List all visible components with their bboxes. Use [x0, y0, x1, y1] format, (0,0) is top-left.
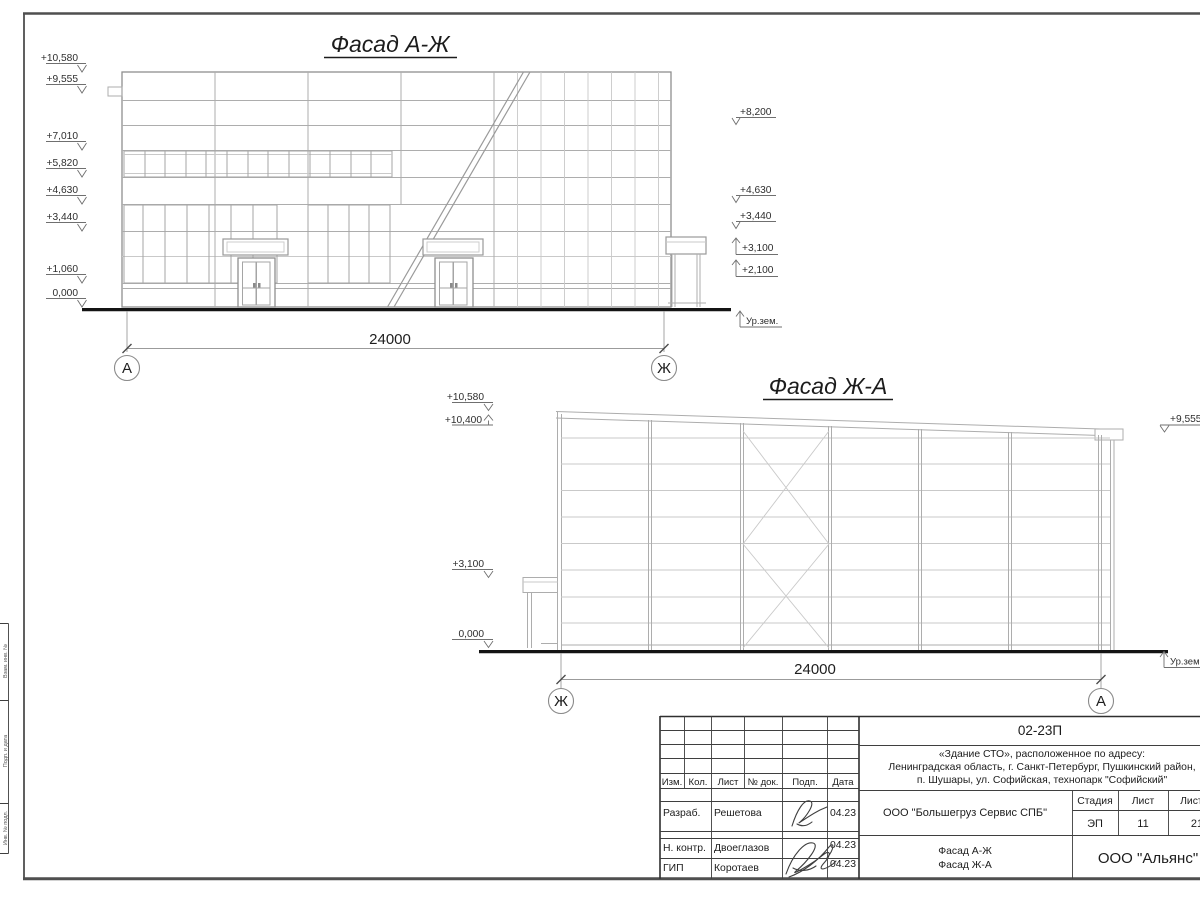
client-name: ООО "Большегруз Сервис СПБ" [883, 807, 1047, 819]
facade2-dimension-value: 24000 [794, 661, 836, 678]
rev-header-cell: Изм. [662, 777, 683, 788]
elevation-mark: +2,100 [732, 260, 778, 277]
elevation-mark: 0,000 [46, 288, 87, 307]
elevation-mark: +5,820 [46, 158, 87, 177]
facade2-title: Фасад Ж-А [769, 373, 888, 399]
sig-role: Н. контр. [663, 843, 706, 854]
elevation-mark: 0,000 [452, 629, 493, 648]
elevation-value: +3,440 [47, 212, 79, 223]
titleblock-column-lines [712, 716, 828, 879]
drawing-sheet: Взам. инв. № Подп. и дата Инв. № подл. Ф… [0, 0, 1200, 900]
margin-label: Взам. инв. № [3, 644, 9, 678]
facade2-elevation-marks-right: +9,555 Ур.зем. [1160, 414, 1200, 668]
elevation-value: +3,100 [453, 559, 485, 570]
sig-role: ГИП [663, 863, 684, 874]
elevation-mark: +3,440 [46, 212, 87, 231]
elevation-mark: +8,200 [732, 107, 776, 125]
facade1-elevation-marks-left: +10,580 +9,555 +7,010 +5,820 +4,630 +3,4… [41, 53, 87, 307]
elevation-mark: +1,060 [46, 264, 87, 283]
elevation-mark: +9,555 [46, 74, 87, 93]
sig-date: 04.23 [830, 808, 856, 819]
elevation-value: +10,580 [447, 392, 484, 403]
elevation-value: 0,000 [459, 629, 485, 640]
elevation-mark: +4,630 [46, 185, 87, 204]
facade2-right-wall [1111, 431, 1115, 650]
rev-header-cell: № док. [748, 777, 779, 788]
sheets-total: 21 [1191, 818, 1200, 830]
facade2-elevation-marks-left: +10,580 +10,400 +3,100 0,000 [445, 392, 493, 648]
elevation-mark: +3,100 [732, 238, 778, 255]
facade1-outline [122, 72, 671, 307]
facade1-elevation-marks-right: +8,200 +4,630 +3,440 +3,100 +2,100 Ур.зе… [732, 107, 782, 327]
elevation-value: +4,630 [47, 185, 79, 196]
rev-header-cell: Дата [832, 777, 854, 788]
facade1-dimension: 24000 А Ж [115, 311, 677, 381]
project-address-line: Ленинградская область, г. Санкт-Петербур… [888, 761, 1195, 773]
facade1-entrance-2 [423, 239, 483, 307]
sheet-number: 11 [1137, 818, 1148, 830]
ground-level-mark: Ур.зем. [1160, 652, 1200, 668]
elevation-value: +10,400 [445, 415, 482, 426]
facade1-window-band [124, 151, 392, 177]
sig-name: Двоеглазов [714, 843, 770, 854]
elevation-mark: +10,400 [445, 415, 493, 426]
margin-stamp: Взам. инв. № Подп. и дата Инв. № подл. [0, 624, 9, 854]
signature-scribble [792, 801, 827, 826]
facade1-grid-mid-mullions [328, 205, 369, 283]
axis-letter: Ж [554, 693, 568, 710]
elevation-value: +9,555 [1170, 414, 1200, 425]
facade1-floor-lines [122, 101, 671, 289]
facade2-porch-canopy [523, 578, 558, 593]
facade2-left-wall [558, 412, 562, 650]
elevation-value: +8,200 [740, 107, 772, 118]
elevation-mark: +4,630 [732, 185, 776, 203]
project-address-line: «Здание СТО», расположенное по адресу: [939, 749, 1145, 760]
ground-level-label: Ур.зем. [1170, 657, 1200, 668]
facade2-dimension: 24000 Ж А [549, 653, 1114, 714]
sig-date: 04.23 [830, 840, 856, 851]
rev-header-cell: Подп. [792, 777, 817, 788]
facade1-entrance-1 [223, 239, 288, 307]
ground-level-mark: Ур.зем. [736, 311, 782, 327]
stage-header: Стадия [1077, 796, 1112, 807]
rev-header-cell: Лист [718, 777, 739, 788]
facade1-curtainwall-mullions [518, 72, 659, 307]
margin-label: Подп. и дата [3, 734, 9, 767]
facade1-title: Фасад А-Ж [331, 31, 451, 57]
facade2-girts [561, 438, 1110, 623]
facade1-door-1-handle [258, 283, 261, 288]
elevation-value: +10,580 [41, 53, 78, 64]
facade1-band-inner [124, 155, 392, 174]
facade1-door-2-handle [450, 283, 453, 288]
margin-label: Инв. № подл. [3, 810, 9, 845]
elevation-mark: +10,580 [41, 53, 87, 72]
facade1-canopy-1 [223, 239, 288, 255]
sig-role: Разраб. [663, 807, 700, 819]
facade1-door-2-handle [455, 283, 458, 288]
sig-name: Решетова [714, 808, 762, 819]
elevation-value: +4,630 [740, 185, 772, 196]
facade1-porch-canopy [666, 237, 706, 254]
sheet-header: Лист [1132, 796, 1155, 807]
facade2-columns [649, 420, 1102, 650]
drawing-title-line: Фасад А-Ж [938, 846, 992, 857]
elevation-value: +3,440 [740, 211, 772, 222]
facade1-porch-posts [668, 254, 706, 307]
elevation-value: +3,100 [742, 243, 774, 254]
facade1-left-ledge [108, 87, 122, 96]
elevation-mark: +3,440 [732, 211, 776, 229]
facade-a-zh: Фасад А-Ж [41, 31, 782, 381]
sheets-total-header: Листов [1180, 796, 1200, 807]
doc-code: 02-23П [1018, 723, 1062, 738]
elevation-value: +5,820 [47, 158, 79, 169]
facade-zh-a: Фасад Ж-А +10,580 [445, 373, 1200, 714]
elevation-value: +9,555 [47, 74, 79, 85]
facade1-door-1-handle [253, 283, 256, 288]
elevation-value: 0,000 [53, 288, 79, 299]
project-address-line: п. Шушары, ул. Софийская, технопарк "Соф… [917, 774, 1168, 786]
elevation-mark: +7,010 [46, 131, 87, 150]
drawing-title-line: Фасад Ж-А [938, 860, 992, 871]
ground-level-label: Ур.зем. [746, 316, 778, 327]
facade1-canopy-2 [423, 239, 483, 255]
elevation-value: +2,100 [742, 265, 774, 276]
elevation-mark: +10,580 [447, 392, 493, 411]
sig-date: 04.23 [830, 859, 856, 870]
title-block: 02-23П «Здание СТО», расположенное по ад… [660, 716, 1200, 879]
drawing-canvas: Взам. инв. № Подп. и дата Инв. № подл. Ф… [0, 0, 1200, 900]
axis-letter: А [1096, 693, 1106, 710]
axis-letter: А [122, 360, 132, 377]
axis-letter: Ж [657, 360, 671, 377]
signature-scribble [786, 843, 836, 877]
elevation-value: +1,060 [47, 264, 79, 275]
facade2-roof-lines [556, 412, 1116, 437]
elevation-mark: +9,555 [1160, 414, 1200, 432]
facade2-porch-post [528, 593, 558, 649]
stage-value: ЭП [1087, 818, 1103, 830]
facade1-dimension-value: 24000 [369, 331, 411, 348]
organization-name: ООО "Альянс" [1098, 850, 1198, 867]
facade2-structure [523, 412, 1123, 651]
sig-name: Коротаев [714, 863, 759, 874]
facade1-right-porch [666, 237, 706, 307]
facade2-left-porch [523, 578, 558, 649]
elevation-mark: +3,100 [452, 559, 493, 578]
elevation-value: +7,010 [47, 131, 79, 142]
rev-header-cell: Кол. [689, 777, 708, 788]
